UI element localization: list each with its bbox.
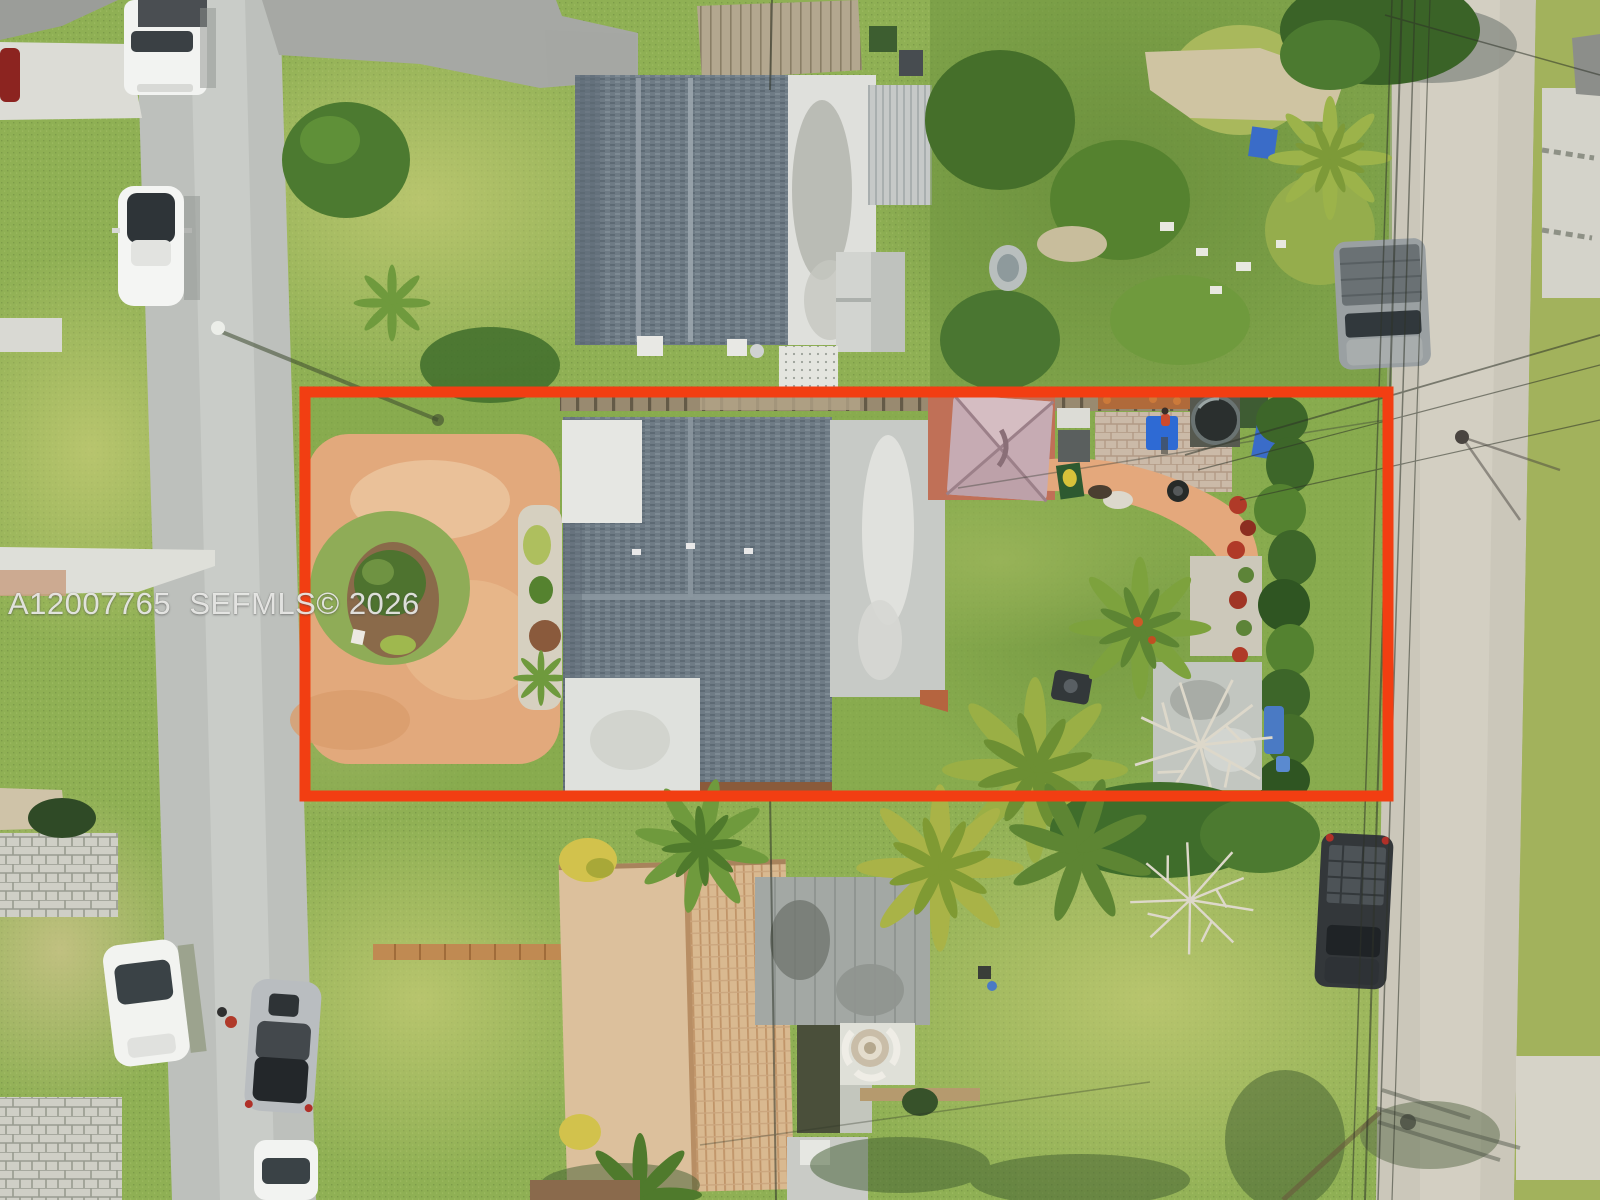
right-driveway-top (1542, 88, 1600, 298)
white-suv (124, 0, 216, 95)
yucca-plant (354, 265, 431, 342)
white-car-bottom (254, 1140, 318, 1200)
outdoor-kitchen (1058, 430, 1090, 462)
paver-driveway-upper (0, 833, 118, 917)
garage-white-roof (562, 420, 642, 523)
bucket (978, 966, 991, 979)
wood-fence (697, 0, 862, 80)
silver-car (243, 978, 322, 1115)
blue-tarp (1264, 706, 1284, 754)
carport-roof (868, 85, 932, 205)
dark-bush (28, 798, 96, 838)
green-bin (869, 26, 897, 52)
foundation-planting-bed (513, 505, 569, 710)
patio-umbrella (947, 395, 1054, 502)
white-sedan (112, 186, 200, 306)
right-driveway-bottom (1516, 1056, 1600, 1180)
outdoor-kitchen-top (1057, 408, 1090, 428)
shaded-side-yard (797, 1025, 840, 1133)
satellite-dish (750, 344, 764, 358)
paver-driveway-lower (0, 1097, 122, 1200)
yellow-bush-2 (559, 1114, 601, 1150)
white-car-on-grass (101, 936, 207, 1068)
gray-bin (899, 50, 923, 76)
wood-deck (530, 1180, 640, 1200)
aerial-photo: A12007765 SEFMLS© 2026 (0, 0, 1600, 1200)
mls-watermark: A12007765 SEFMLS© 2026 (8, 586, 420, 622)
dark-pickup-truck (1314, 832, 1394, 990)
red-car (0, 48, 20, 102)
